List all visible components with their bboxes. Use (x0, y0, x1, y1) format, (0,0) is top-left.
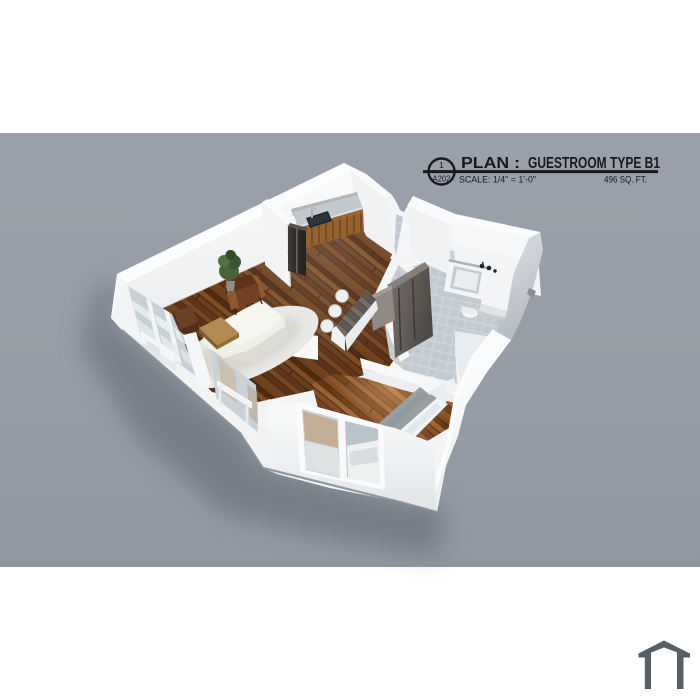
svg-text:496 SQ. FT.: 496 SQ. FT. (604, 175, 647, 185)
svg-text:PLAN :: PLAN : (461, 155, 520, 172)
svg-text:A202: A202 (432, 175, 450, 184)
svg-text:1: 1 (439, 160, 444, 170)
svg-text:GUESTROOM TYPE B1: GUESTROOM TYPE B1 (528, 155, 660, 172)
svg-text:SCALE: 1/4" = 1'-0": SCALE: 1/4" = 1'-0" (459, 175, 536, 185)
